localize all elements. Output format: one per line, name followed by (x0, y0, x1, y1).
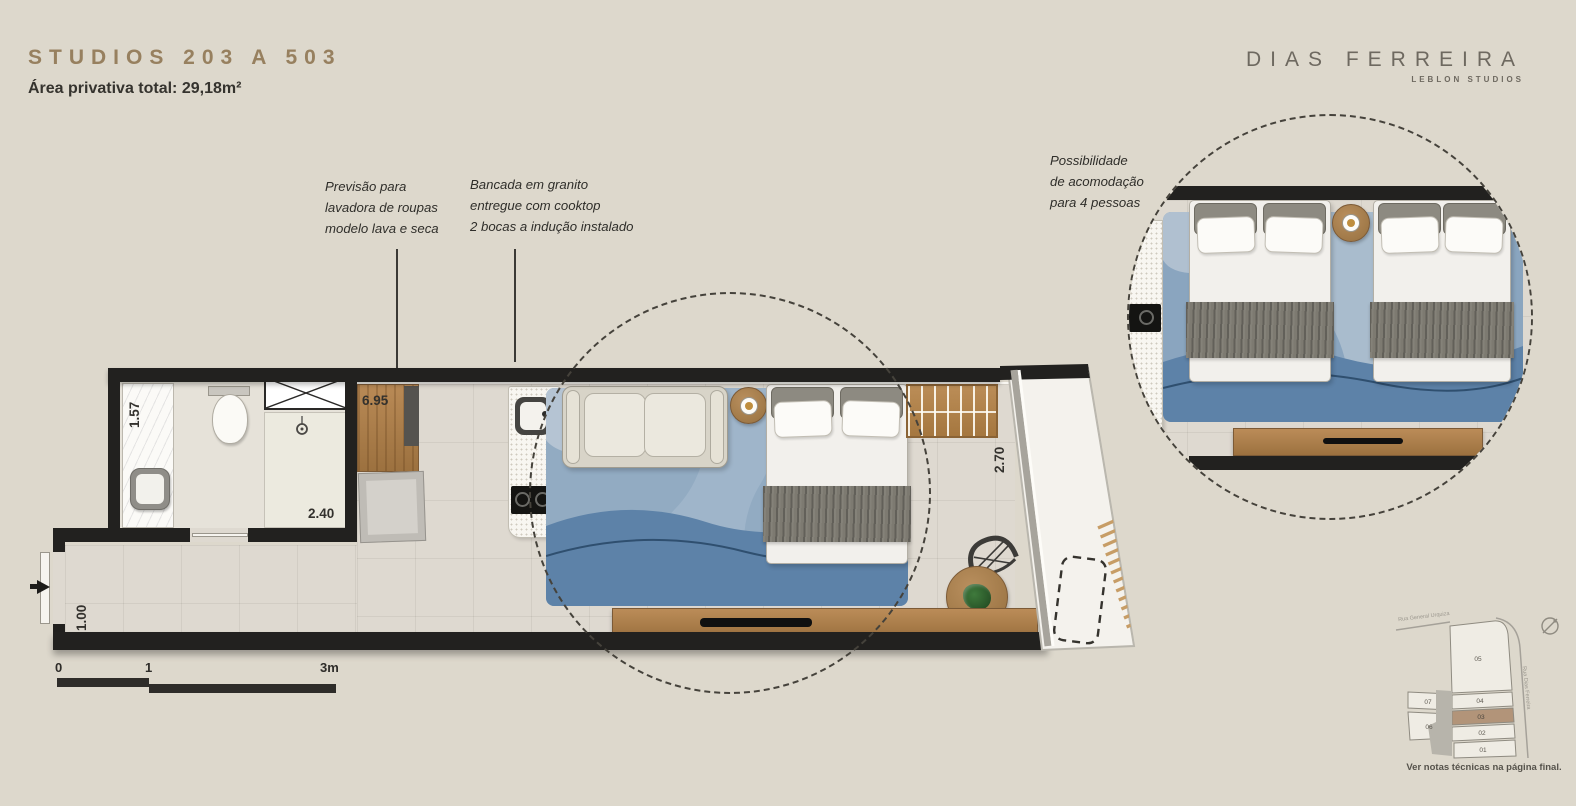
street-top-label: Rua General Urquiza (1398, 611, 1451, 623)
detail-bed-1 (1189, 200, 1331, 382)
technical-note: Ver notas técnicas na página final. (1392, 762, 1576, 773)
detail-wall-top (1149, 186, 1533, 200)
site-map: 05 04 03 02 01 07 06 Rua General Urquiza… (1392, 596, 1576, 762)
site-unit-04-label: 04 (1476, 698, 1484, 705)
x-window-icon (266, 378, 346, 408)
detail-wall-bottom (1189, 456, 1489, 470)
wall-bath-left (108, 368, 120, 542)
wall-bath-right (345, 368, 357, 542)
brand-logo: DIAS FERREIRA LEBLON STUDIOS (1246, 48, 1524, 84)
living-highlight-circle (529, 292, 931, 694)
scale-zero: 0 (55, 660, 62, 675)
shower-head-icon (293, 416, 311, 438)
detail-view-4-persons (1127, 114, 1533, 520)
detail-cooktop (1129, 304, 1161, 332)
dim-balcony: 2.70 (992, 447, 1007, 473)
entry-door-opening (53, 552, 65, 624)
dim-shower: 2.40 (308, 506, 334, 521)
detail-island (1127, 220, 1163, 472)
scale-segment-1 (57, 678, 149, 687)
brand-tagline: LEBLON STUDIOS (1246, 75, 1524, 84)
balcony (1000, 362, 1140, 654)
site-unit-01-label: 01 (1479, 747, 1487, 754)
toilet (212, 394, 248, 444)
leader-line-washer (396, 249, 398, 368)
scale-segment-2 (149, 684, 336, 693)
site-unit-07-label: 07 (1424, 699, 1432, 706)
entrance-arrow-icon (37, 580, 50, 594)
site-unit-03-label: 03 (1477, 714, 1485, 721)
detail-bed-2 (1373, 200, 1511, 382)
site-unit-02-label: 02 (1478, 730, 1486, 737)
annotation-washer: Previsão para lavadora de roupas modelo … (325, 177, 439, 240)
laundry-cabinet-shadow (404, 386, 419, 446)
washer-space (358, 471, 426, 543)
detail-table-lamp (1342, 214, 1360, 232)
entry-hall-floor (65, 545, 357, 632)
dim-bath: 1.57 (127, 402, 142, 428)
scale-one: 1 (145, 660, 152, 675)
detail-side-table (1332, 204, 1370, 242)
wall-bottom (53, 632, 1048, 650)
dim-entry: 1.00 (74, 605, 89, 631)
page: STUDIOS 203 A 503 Área privativa total: … (0, 0, 1576, 806)
detail-tv (1323, 438, 1403, 444)
dim-living: 6.95 (362, 393, 388, 408)
leader-line-counter (514, 249, 516, 362)
entrance-arrow-tail (30, 584, 37, 589)
bathroom-door (192, 533, 248, 537)
annotation-counter: Bancada em granito entregue com cooktop … (470, 175, 634, 238)
scale-three: 3m (320, 660, 339, 675)
site-unit-05-label: 05 (1474, 656, 1482, 663)
site-unit-06-label: 06 (1425, 724, 1433, 731)
bathroom-sink (130, 468, 170, 510)
private-area-label: Área privativa total: 29,18m² (28, 80, 241, 98)
brand-name: DIAS FERREIRA (1246, 48, 1524, 72)
plant-icon (963, 584, 991, 610)
page-title: STUDIOS 203 A 503 (28, 46, 342, 70)
